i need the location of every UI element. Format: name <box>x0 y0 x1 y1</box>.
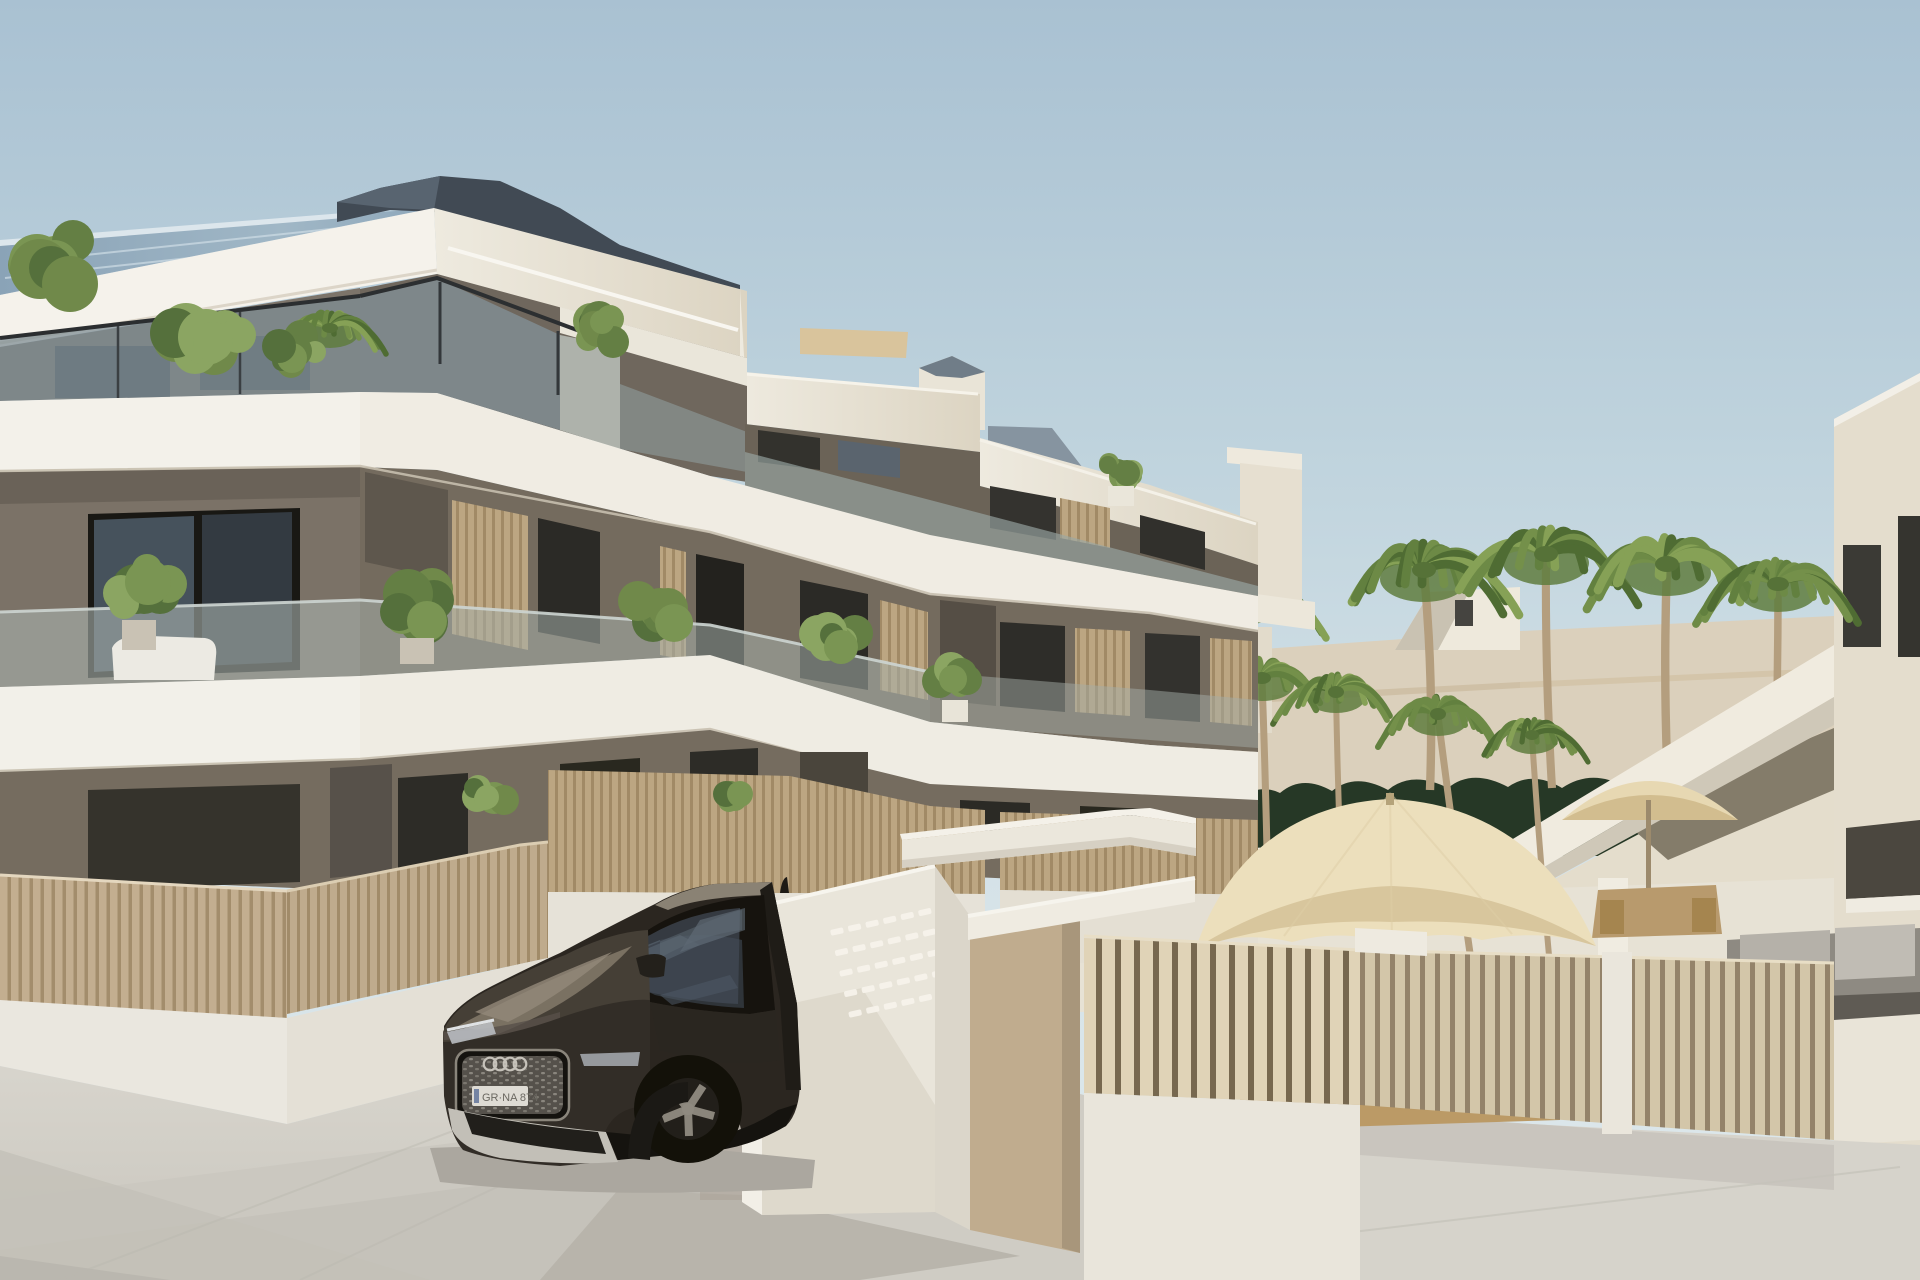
svg-text:GR·NA 874: GR·NA 874 <box>482 1092 538 1104</box>
